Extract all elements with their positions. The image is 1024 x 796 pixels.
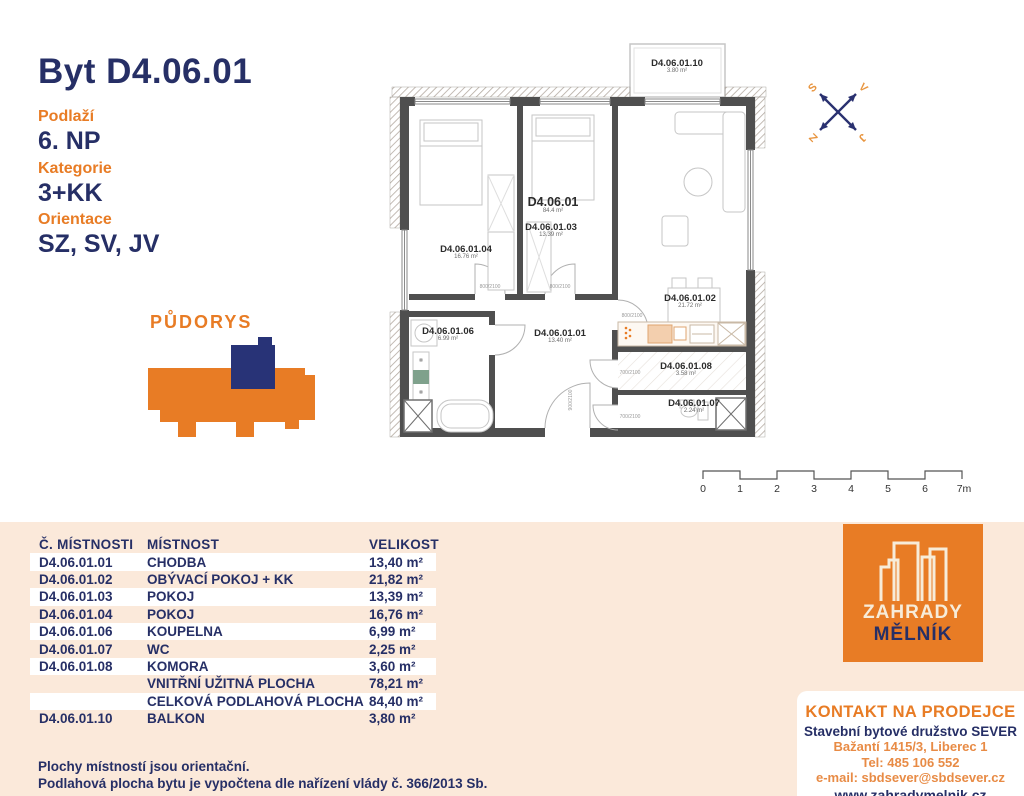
rooms-table: Č. MÍSTNOSTI MÍSTNOST VELIKOST D4.06.01.… (30, 536, 436, 727)
contact-heading: KONTAKT NA PRODEJCE (797, 703, 1024, 722)
contact-phone: Tel: 485 106 552 (797, 755, 1024, 771)
room-label-10-balcony: D4.06.01.103.80 m² (651, 58, 703, 74)
attribute-label: Kategorie (38, 160, 112, 178)
footnote-line: Podlahová plocha bytu je vypočtena dle n… (38, 775, 487, 792)
table-row: D4.06.01.10BALKON3,80 m² (30, 710, 436, 727)
logo-text-melnik: MĚLNÍK (843, 624, 983, 646)
attribute-value: 6. NP (38, 127, 101, 156)
svg-text:5: 5 (885, 483, 891, 495)
attribute-value: 3+KK (38, 179, 112, 208)
table-summary-row-usable-area: VNITŘNÍ UŽITNÁ PLOCHA78,21 m² (30, 675, 436, 692)
svg-text:0: 0 (700, 483, 706, 495)
room-label-06: D4.06.01.066.99 m² (422, 326, 474, 342)
contact-address: Bažantí 1415/3, Liberec 1 (797, 739, 1024, 755)
contact-card: KONTAKT NA PRODEJCE Stavební bytové druž… (797, 691, 1024, 796)
floor-plan: 800/2100 800/2100 800/2100 700/2100 700/… (380, 30, 780, 500)
kitchen-counter (618, 322, 746, 346)
svg-text:V: V (856, 81, 870, 95)
room-label-01: D4.06.01.0113.40 m² (534, 328, 586, 344)
svg-text:900/2100: 900/2100 (568, 389, 574, 410)
footnote-line: Plochy místností jsou orientační. (38, 758, 487, 775)
svg-text:2: 2 (774, 483, 780, 495)
svg-text:800/2100: 800/2100 (480, 284, 501, 290)
table-row: D4.06.01.01CHODBA13,40 m² (30, 553, 436, 570)
zahrady-melnik-logo: ZAHRADY MĚLNÍK (843, 524, 983, 662)
bedroom-04-furniture (420, 120, 514, 290)
attribute-label: Orientace (38, 211, 159, 229)
room-label-08: D4.06.01.083.58 m² (660, 361, 712, 377)
contact-email[interactable]: e-mail: sbdsever@sbdsever.cz (797, 770, 1024, 786)
apartment-label: D4.06.0184.4 m² (528, 195, 579, 214)
svg-text:800/2100: 800/2100 (622, 313, 643, 319)
table-row: D4.06.01.03POKOJ13,39 m² (30, 588, 436, 605)
buildings-icon (876, 540, 950, 602)
shaft-box-right (716, 398, 746, 430)
table-row: D4.06.01.07WC2,25 m² (30, 640, 436, 657)
building-footprint-minimap (135, 325, 335, 455)
attribute-category: Kategorie 3+KK (38, 160, 112, 208)
attribute-label: Podlaží (38, 108, 101, 126)
room-label-07: D4.06.01.072.24 m² (668, 398, 720, 414)
col-header-room-number: Č. MÍSTNOSTI (39, 537, 147, 552)
scale-bar-line (703, 471, 962, 479)
svg-text:S: S (806, 81, 820, 95)
attribute-value: SZ, SV, JV (38, 230, 159, 259)
contact-company: Stavební bytové družstvo SEVER (797, 724, 1024, 739)
room-label-03: D4.06.01.0313.39 m² (525, 222, 577, 238)
flat-datasheet-page: Byt D4.06.01 Podlaží 6. NP Kategorie 3+K… (0, 0, 1024, 796)
shaft-box (404, 400, 432, 432)
table-header-row: Č. MÍSTNOSTI MÍSTNOST VELIKOST (30, 536, 436, 553)
logo-text-zahrady: ZAHRADY (843, 602, 983, 624)
room-label-02: D4.06.01.0221.72 m² (664, 293, 716, 309)
col-header-room-name: MÍSTNOST (147, 537, 369, 552)
scale-bar: 0 1 2 3 4 5 6 7m (690, 460, 980, 496)
apartment-location-highlight (231, 345, 275, 389)
table-row: D4.06.01.06KOUPELNA6,99 m² (30, 623, 436, 640)
floor-plan-drawing: 800/2100 800/2100 800/2100 700/2100 700/… (380, 30, 780, 500)
table-row: D4.06.01.08KOMORA3,60 m² (30, 658, 436, 675)
svg-text:700/2100: 700/2100 (620, 370, 641, 376)
attribute-orientation: Orientace SZ, SV, JV (38, 211, 159, 259)
col-header-size: VELIKOST (369, 537, 445, 552)
svg-text:6: 6 (922, 483, 928, 495)
attribute-floor: Podlaží 6. NP (38, 108, 101, 156)
room-label-04: D4.06.01.0416.76 m² (440, 244, 492, 260)
compass-icon: S V Z J (798, 72, 878, 152)
svg-text:800/2100: 800/2100 (550, 284, 571, 290)
page-title: Byt D4.06.01 (38, 52, 252, 92)
svg-text:1: 1 (737, 483, 743, 495)
table-row: D4.06.01.04POKOJ16,76 m² (30, 606, 436, 623)
table-body: D4.06.01.01CHODBA13,40 m² D4.06.01.02OBÝ… (30, 553, 436, 727)
table-row: D4.06.01.02OBÝVACÍ POKOJ + KK21,82 m² (30, 571, 436, 588)
svg-text:7m: 7m (957, 483, 972, 495)
contact-website-link[interactable]: www.zahradymelnik.cz (797, 787, 1024, 796)
svg-text:700/2100: 700/2100 (620, 414, 641, 420)
svg-text:4: 4 (848, 483, 854, 495)
table-summary-row-total-area: CELKOVÁ PODLAHOVÁ PLOCHA84,40 m² (30, 693, 436, 710)
svg-text:J: J (856, 131, 869, 144)
svg-text:3: 3 (811, 483, 817, 495)
svg-text:Z: Z (807, 130, 820, 143)
footnotes: Plochy místností jsou orientační. Podlah… (38, 758, 487, 792)
